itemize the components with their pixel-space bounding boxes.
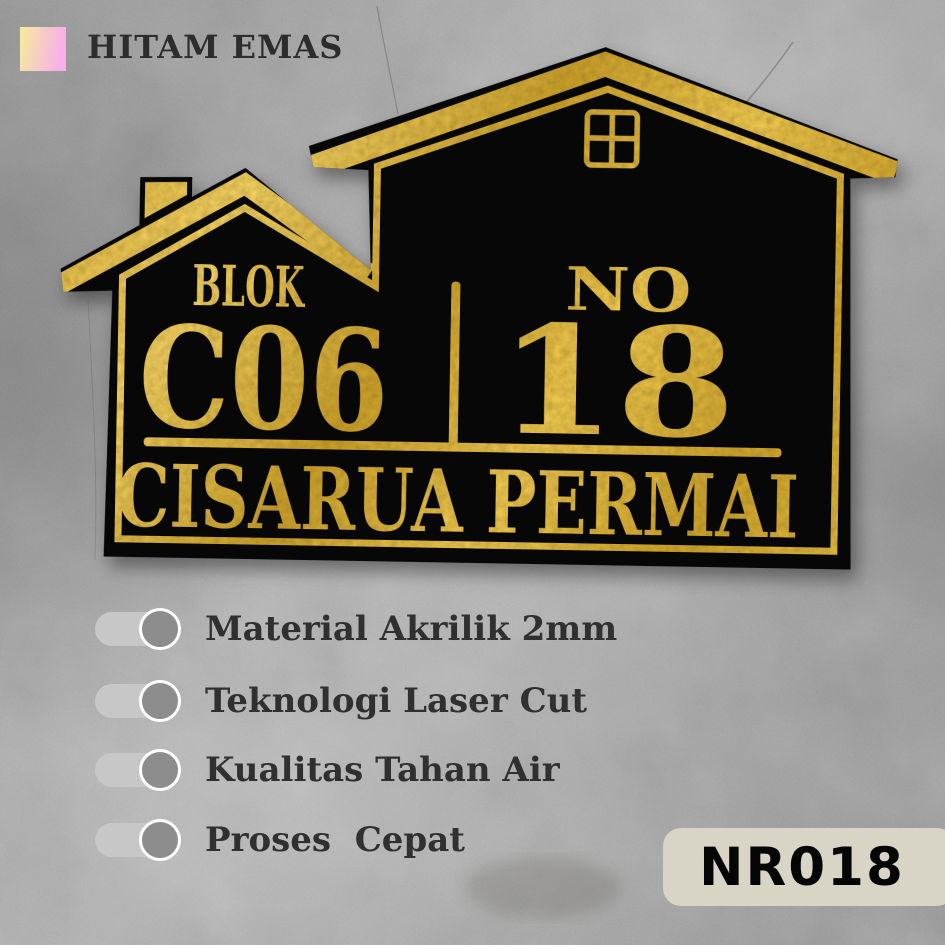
toggle-knob-icon xyxy=(139,749,181,791)
feature-label: Kualitas Tahan Air xyxy=(205,750,560,790)
blok-value: C06 xyxy=(137,296,390,464)
feature-label: Proses Cepat xyxy=(205,820,465,860)
feature-row: Proses Cepat xyxy=(95,819,465,861)
product-code: NR018 xyxy=(699,837,919,898)
toggle-icon xyxy=(95,823,179,857)
stain-spot xyxy=(465,858,621,918)
toggle-icon xyxy=(95,684,179,718)
feature-label: Teknologi Laser Cut xyxy=(205,681,587,721)
product-image: HITAM EMAS xyxy=(0,0,945,945)
street-name: CISARUA PERMAI xyxy=(116,446,800,559)
house-sign: BLOK C06 NO 18 CISARUA PERMAI xyxy=(50,33,904,588)
toggle-icon xyxy=(95,612,179,646)
toggle-knob-icon xyxy=(139,608,181,650)
feature-row: Material Akrilik 2mm xyxy=(95,608,617,650)
toggle-icon xyxy=(95,753,179,787)
toggle-knob-icon xyxy=(139,680,181,722)
toggle-knob-icon xyxy=(139,819,181,861)
no-value: 18 xyxy=(496,292,737,472)
feature-row: Kualitas Tahan Air xyxy=(95,749,560,791)
feature-label: Material Akrilik 2mm xyxy=(205,609,617,649)
product-code-badge: NR018 xyxy=(663,828,945,906)
feature-row: Teknologi Laser Cut xyxy=(95,680,587,722)
